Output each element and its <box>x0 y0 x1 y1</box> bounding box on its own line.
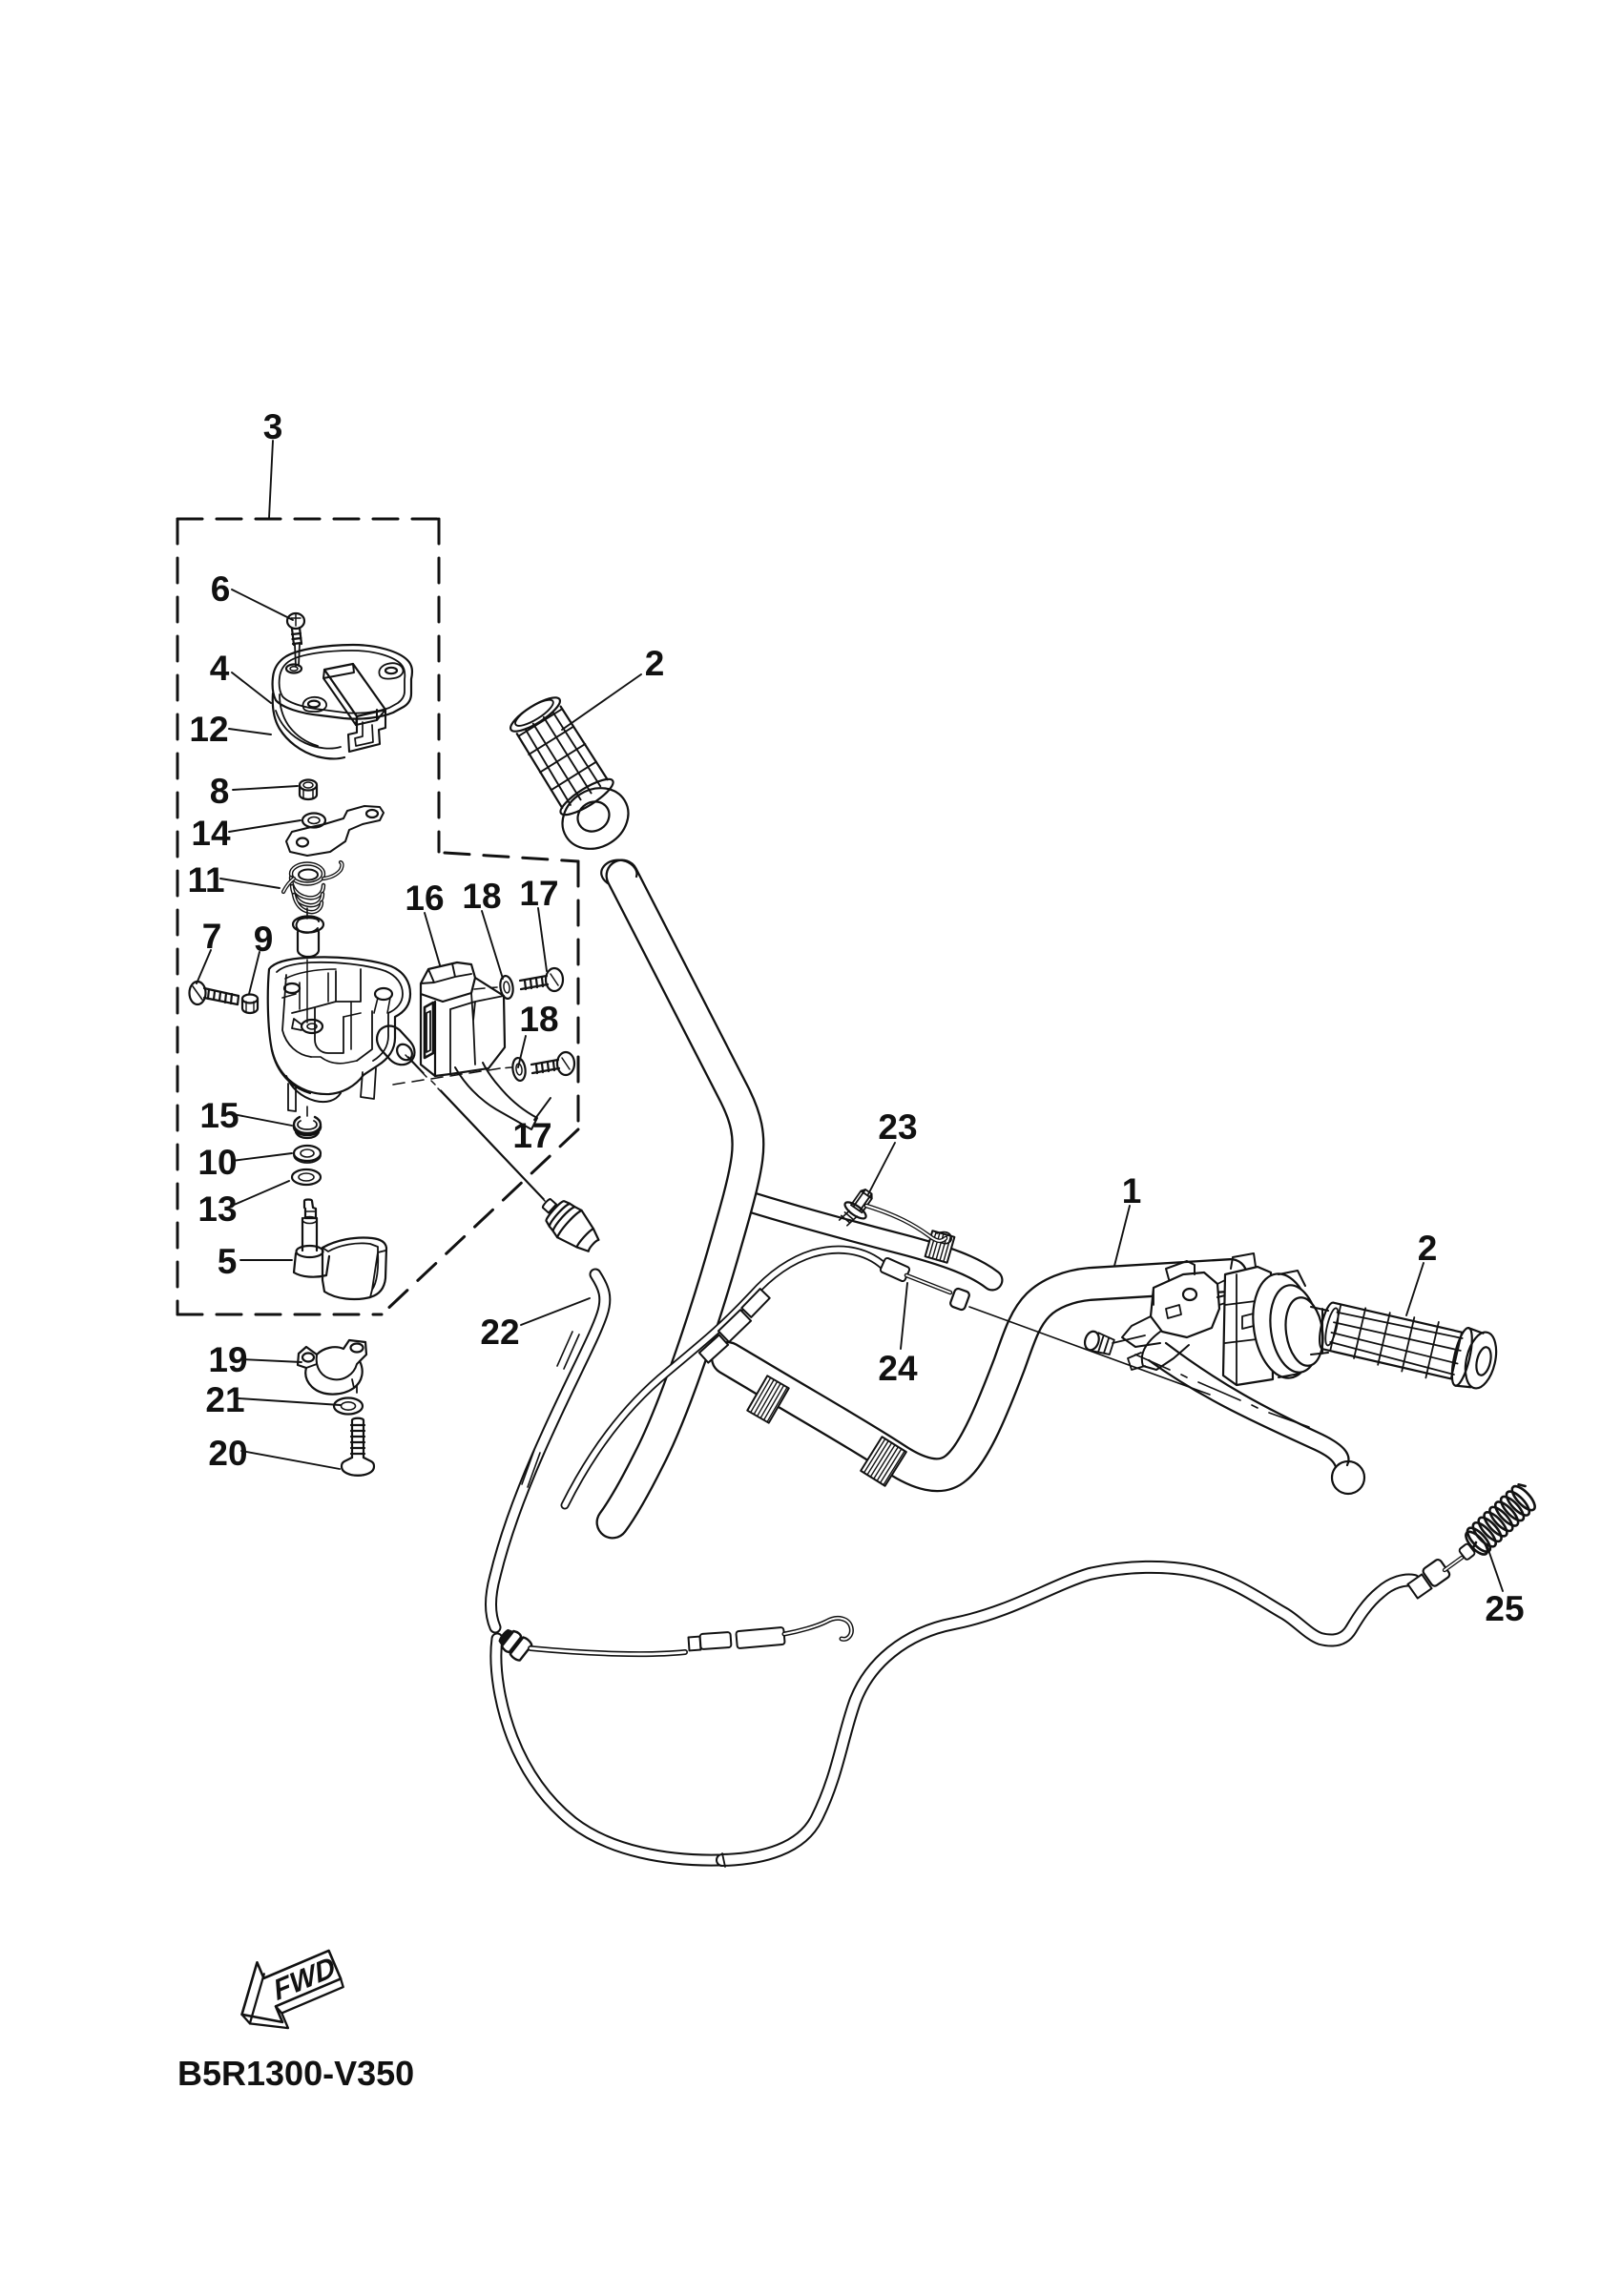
svg-text:3: 3 <box>263 407 283 446</box>
svg-text:24: 24 <box>878 1349 918 1388</box>
svg-text:10: 10 <box>198 1143 237 1182</box>
svg-text:20: 20 <box>208 1434 247 1473</box>
svg-text:17: 17 <box>519 874 558 913</box>
svg-text:4: 4 <box>210 649 230 688</box>
svg-text:7: 7 <box>202 917 222 956</box>
svg-text:16: 16 <box>405 879 444 918</box>
svg-text:11: 11 <box>187 860 224 900</box>
svg-text:22: 22 <box>480 1313 519 1352</box>
svg-text:13: 13 <box>198 1189 237 1229</box>
svg-text:19: 19 <box>208 1340 247 1379</box>
svg-text:12: 12 <box>189 710 228 749</box>
svg-text:8: 8 <box>210 772 230 811</box>
svg-text:6: 6 <box>211 569 231 609</box>
svg-text:1: 1 <box>1122 1171 1142 1210</box>
svg-text:23: 23 <box>878 1107 917 1147</box>
svg-text:2: 2 <box>1418 1229 1438 1268</box>
svg-text:15: 15 <box>199 1096 239 1135</box>
svg-text:18: 18 <box>462 877 501 916</box>
svg-text:14: 14 <box>191 814 231 853</box>
svg-text:18: 18 <box>519 1000 558 1039</box>
svg-text:21: 21 <box>205 1380 244 1419</box>
svg-text:2: 2 <box>645 644 665 683</box>
svg-text:9: 9 <box>254 920 274 959</box>
svg-text:25: 25 <box>1485 1589 1524 1628</box>
svg-text:B5R1300-V350: B5R1300-V350 <box>177 2054 414 2093</box>
svg-text:5: 5 <box>218 1242 238 1281</box>
